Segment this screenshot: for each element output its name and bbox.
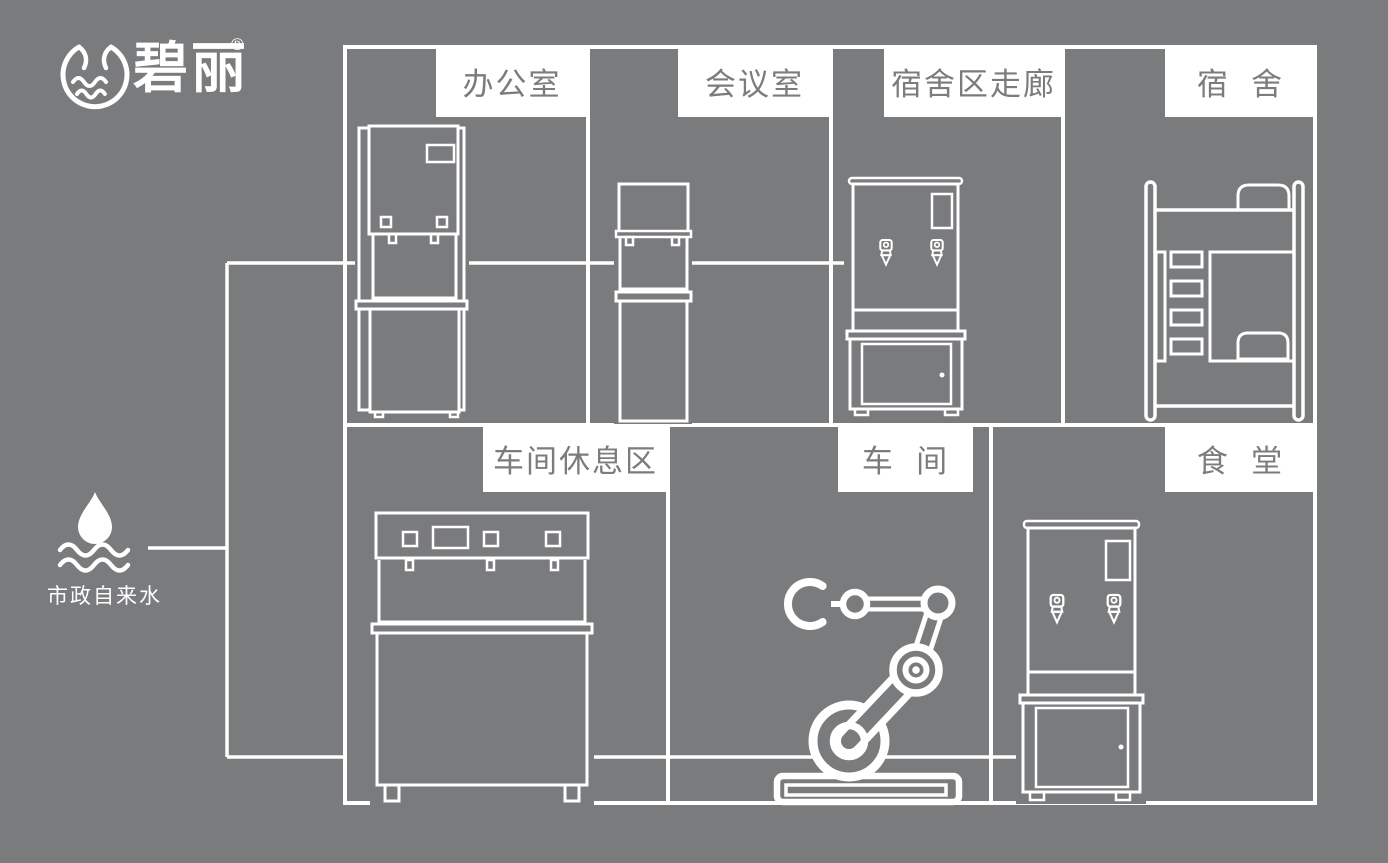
room-label-canteen: 食 堂 bbox=[1165, 425, 1316, 492]
wide-multi-tap-dispenser-icon bbox=[370, 510, 594, 806]
room-label-dormitory: 宿 舍 bbox=[1165, 45, 1316, 117]
water-boiler-with-stand-icon bbox=[1016, 518, 1146, 804]
bunk-bed-icon bbox=[1146, 182, 1303, 420]
solution-diagram: 碧丽 ® 市政自来水 办公室 会议室 宿舍区走廊 宿 舍 车间休息区 车 间 食… bbox=[0, 0, 1388, 863]
water-drop-waves-icon bbox=[60, 492, 128, 571]
robot-arm-icon bbox=[777, 582, 959, 802]
room-label-meeting-room: 会议室 bbox=[678, 45, 831, 117]
water-cup-logo-icon bbox=[63, 47, 127, 107]
water-source-label: 市政自来水 bbox=[47, 580, 162, 610]
floor-standing-dispenser-icon bbox=[355, 124, 469, 417]
slim-dispenser-icon bbox=[614, 182, 692, 424]
room-label-dorm-corridor: 宿舍区走廊 bbox=[884, 45, 1063, 117]
water-boiler-with-stand-icon bbox=[844, 175, 968, 417]
registered-trademark: ® bbox=[231, 36, 244, 53]
room-label-workshop-rest-area: 车间休息区 bbox=[483, 425, 668, 492]
room-label-office: 办公室 bbox=[436, 45, 588, 117]
room-label-workshop: 车 间 bbox=[838, 425, 973, 492]
